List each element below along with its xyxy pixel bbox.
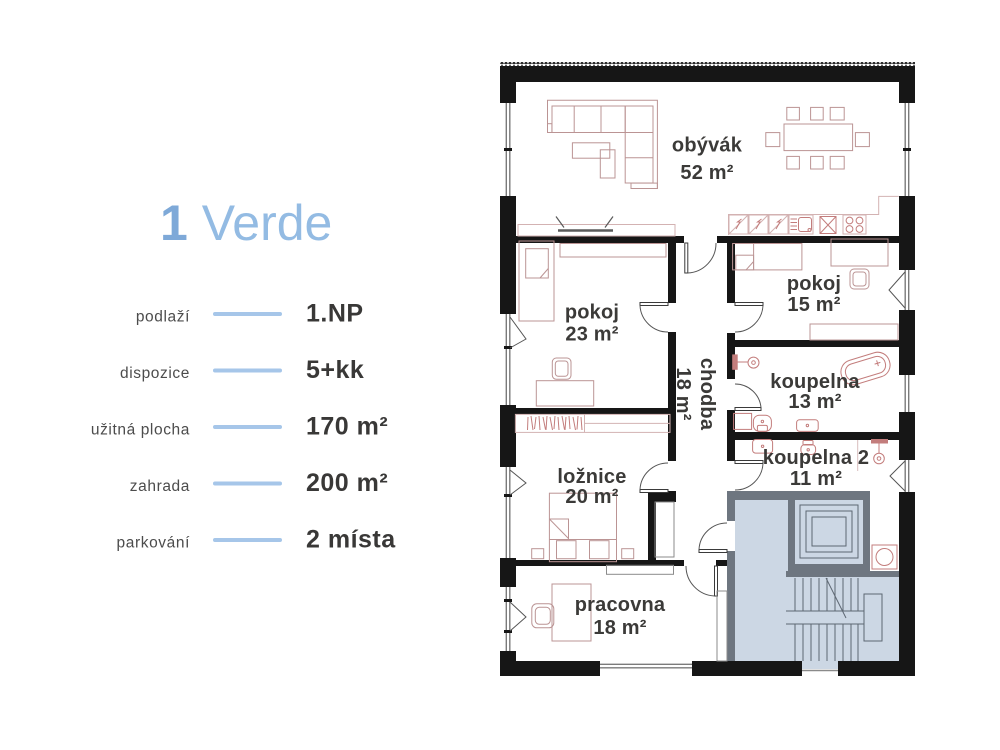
svg-text:5+kk: 5+kk: [306, 356, 364, 384]
svg-text:20 m²: 20 m²: [565, 486, 618, 508]
svg-text:15 m²: 15 m²: [787, 294, 840, 316]
svg-text:11 m²: 11 m²: [790, 468, 842, 490]
svg-text:1 Verde: 1 Verde: [160, 195, 332, 251]
svg-text:18 m²: 18 m²: [593, 617, 646, 639]
svg-text:2 místa: 2 místa: [306, 526, 396, 554]
svg-text:zahrada: zahrada: [130, 478, 190, 495]
svg-text:200 m²: 200 m²: [306, 469, 388, 497]
svg-text:1.NP: 1.NP: [306, 300, 364, 328]
svg-text:170 m²: 170 m²: [306, 413, 388, 441]
svg-text:pracovna: pracovna: [575, 594, 666, 616]
svg-text:23 m²: 23 m²: [565, 324, 618, 346]
svg-text:pokoj: pokoj: [787, 273, 841, 295]
svg-text:pokoj: pokoj: [565, 302, 619, 324]
svg-text:koupelna 2: koupelna 2: [763, 447, 869, 469]
svg-text:koupelna: koupelna: [770, 371, 860, 393]
svg-text:obývák: obývák: [672, 135, 743, 157]
svg-text:52 m²: 52 m²: [680, 162, 733, 184]
svg-text:parkování: parkování: [117, 535, 191, 552]
svg-text:13 m²: 13 m²: [788, 391, 841, 413]
svg-text:18 m²: 18 m²: [672, 367, 694, 420]
svg-text:užitná plocha: užitná plocha: [91, 422, 190, 439]
svg-text:podlaží: podlaží: [136, 309, 190, 326]
svg-text:ložnice: ložnice: [557, 466, 626, 488]
svg-text:dispozice: dispozice: [120, 365, 190, 382]
svg-text:chodba: chodba: [696, 358, 718, 431]
